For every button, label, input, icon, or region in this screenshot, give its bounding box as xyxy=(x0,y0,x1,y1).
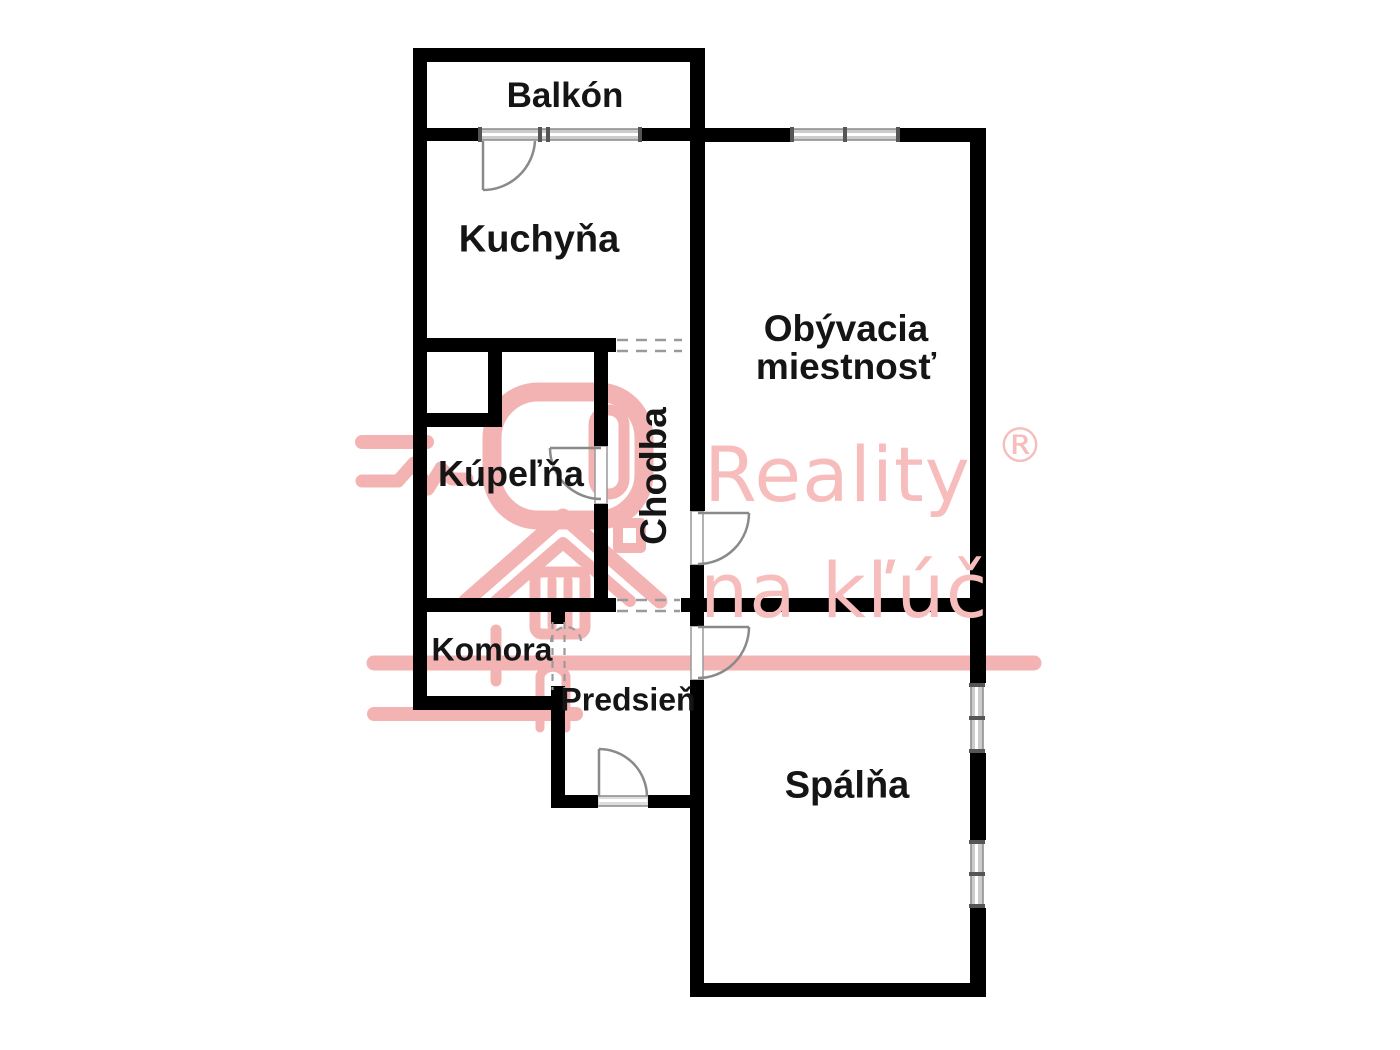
kitchen-hall-opening xyxy=(617,340,682,351)
wall-living-right xyxy=(970,128,986,612)
wall-vestibule-bottom-left xyxy=(551,795,598,808)
balcony-window xyxy=(478,127,642,142)
wall-living-top-left xyxy=(703,128,790,142)
wall-pantry-bottom xyxy=(413,696,565,710)
wall-bedroom-bottom xyxy=(690,983,986,997)
balcony-door xyxy=(483,141,535,190)
room-label-pantry: Komora xyxy=(432,632,553,669)
room-label-bedroom: Spálňa xyxy=(785,765,910,808)
room-label-living-room-line1: Obývacia xyxy=(756,310,936,348)
entrance-sill xyxy=(597,796,649,806)
room-label-hallway: Chodba xyxy=(633,407,675,545)
watermark-registered-icon: ® xyxy=(996,418,1045,474)
wall-balcony-top xyxy=(413,48,705,62)
wall-kitchen-bottom xyxy=(413,338,616,352)
room-label-vestibule: Predsieň xyxy=(560,682,695,719)
entrance-door xyxy=(599,749,647,796)
watermark-tagline-text: na kľúč xyxy=(700,546,988,635)
watermark-brand-text: Reality xyxy=(704,430,971,519)
wall-bedroom-right-mid xyxy=(970,753,986,840)
room-label-living-room-line2: miestnosť xyxy=(756,348,936,386)
wall-bathroom-hall-lower xyxy=(594,504,608,598)
bathroom-door-frame xyxy=(595,446,607,504)
wall-balcony-right-and-divider xyxy=(690,48,705,511)
room-label-living-room: Obývacia miestnosť xyxy=(756,310,936,386)
wall-middle-left xyxy=(413,598,616,612)
wall-bedroom-right-bottom xyxy=(970,908,986,997)
bedroom-window-upper xyxy=(969,683,985,753)
room-label-bathroom: Kúpeľňa xyxy=(438,453,584,495)
wall-kitchen-top-right xyxy=(642,128,705,141)
room-label-kitchen: Kuchyňa xyxy=(459,219,619,262)
wall-bedroom-left xyxy=(690,680,704,997)
bedroom-window-lower xyxy=(969,840,985,908)
wall-notch-bottom xyxy=(413,413,502,427)
wall-bathroom-hall-upper xyxy=(594,352,608,446)
floor-plan-graphic xyxy=(0,0,1400,1050)
room-label-balcony: Balkón xyxy=(507,76,624,116)
wall-kitchen-top-left xyxy=(413,128,478,141)
living-room-window xyxy=(790,127,900,142)
floor-plan-canvas: Reality ® na kľúč Balkón Kuchyňa Obývaci… xyxy=(0,0,1400,1050)
